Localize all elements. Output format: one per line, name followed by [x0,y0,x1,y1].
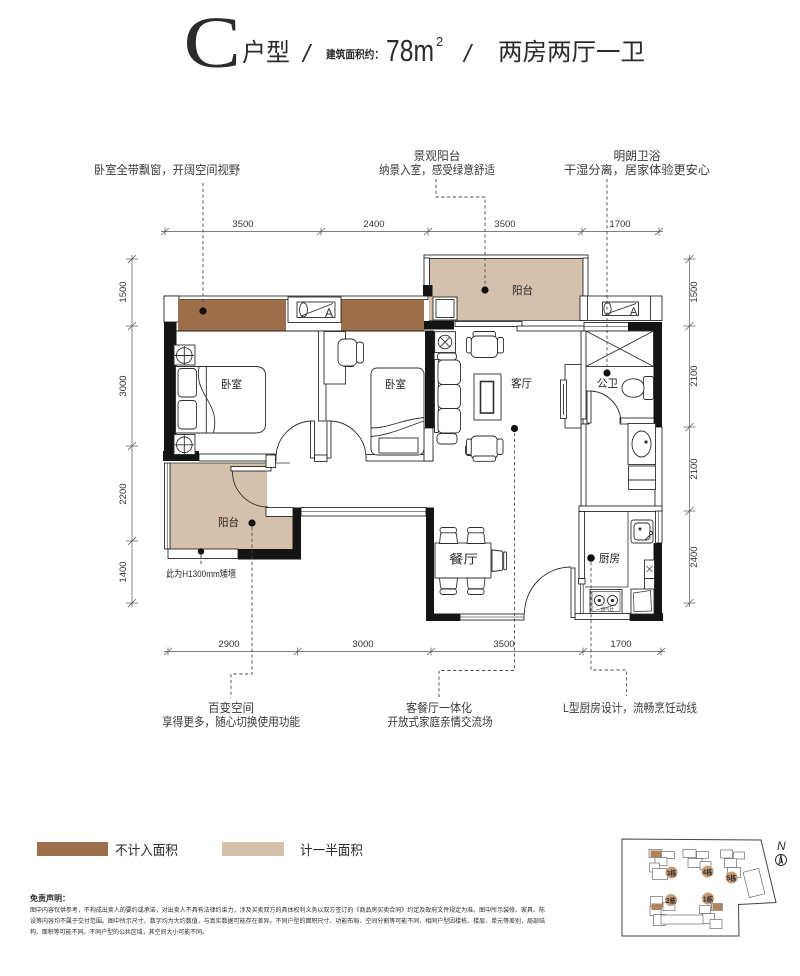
svg-text:卧室: 卧室 [385,377,406,391]
svg-text:L型厨房设计，流畅烹饪动线: L型厨房设计，流畅烹饪动线 [563,700,697,715]
svg-text:3000: 3000 [352,639,373,650]
svg-text:卧室: 卧室 [221,377,242,391]
svg-text:2400: 2400 [363,219,384,230]
svg-text:百变空间: 百变空间 [208,700,254,715]
svg-text:景观阳台: 景观阳台 [414,148,461,163]
svg-text:3500: 3500 [493,639,514,650]
svg-text:2900: 2900 [218,639,239,650]
svg-text:1700: 1700 [610,639,631,650]
svg-text:阳台: 阳台 [218,515,239,529]
svg-text:C: C [184,3,241,83]
svg-text:2: 2 [436,34,443,49]
svg-text:公卫: 公卫 [597,378,618,390]
svg-text:A: A [325,306,333,320]
svg-text:1500: 1500 [689,281,700,302]
svg-text:3500: 3500 [232,219,253,230]
svg-text:不计入面积: 不计入面积 [115,843,178,858]
svg-text:3000: 3000 [118,375,129,396]
svg-text:1500: 1500 [118,281,129,302]
svg-text:免责声明：: 免责声明： [30,893,70,903]
svg-text:户型: 户型 [242,39,290,67]
svg-text:卧室全带飘窗，开阔空间视野: 卧室全带飘窗，开阔空间视野 [94,162,240,177]
svg-text:建筑面积约：: 建筑面积约： [326,47,384,61]
svg-text:客餐厅一体化: 客餐厅一体化 [406,700,472,715]
svg-text:图中内容仅供参考，不构成出卖人的要约或承诺，对出卖人不具有法: 图中内容仅供参考，不构成出卖人的要约或承诺，对出卖人不具有法律约束力，涉及买卖双… [30,906,545,914]
svg-text:构、面积等可能不同。不同户型的公共区域，其空间大小可能不同。: 构、面积等可能不同。不同户型的公共区域，其空间大小可能不同。 [30,928,208,936]
svg-text:2栋: 2栋 [666,896,676,905]
svg-text:明朗卫浴: 明朗卫浴 [614,149,661,163]
svg-text:4栋: 4栋 [703,867,713,876]
svg-text:餐厅: 餐厅 [449,552,478,567]
svg-text:1400: 1400 [118,561,129,582]
svg-text:N: N [777,839,786,853]
svg-text:计一半面积: 计一半面积 [300,843,363,858]
svg-text:阳台: 阳台 [512,283,533,297]
svg-text:此为H1300mm矮墙: 此为H1300mm矮墙 [166,568,236,580]
svg-text:开放式家庭亲情交流场: 开放式家庭亲情交流场 [388,714,493,729]
svg-text:厨房: 厨房 [599,552,620,565]
svg-text:2200: 2200 [118,483,129,504]
svg-text:A: A [630,306,638,318]
svg-text:2400: 2400 [689,546,700,567]
svg-text:设等内容均不属于交付范围。图中所示尺寸、数字均为大约数值，与: 设等内容均不属于交付范围。图中所示尺寸、数字均为大约数值，与真实数据可能存在差异… [30,917,545,925]
svg-text:2100: 2100 [689,458,700,479]
svg-text:干湿分离，居家体验更安心: 干湿分离，居家体验更安心 [564,162,710,177]
svg-text:两房两厅一卫: 两房两厅一卫 [498,39,645,66]
svg-text:3500: 3500 [494,219,515,230]
svg-text:燃气灶: 燃气灶 [601,606,614,613]
svg-text:客厅: 客厅 [511,376,532,390]
svg-text:2100: 2100 [689,365,700,386]
svg-text:纳景入室，感受绿意舒适: 纳景入室，感受绿意舒适 [379,162,495,177]
svg-text:1700: 1700 [609,219,630,230]
svg-text:享得更多，随心切换使用功能: 享得更多，随心切换使用功能 [162,714,300,729]
svg-text:3栋: 3栋 [667,868,677,877]
svg-text:1栋: 1栋 [703,894,713,903]
svg-text:78m: 78m [386,33,434,68]
svg-text:5栋: 5栋 [727,873,737,882]
